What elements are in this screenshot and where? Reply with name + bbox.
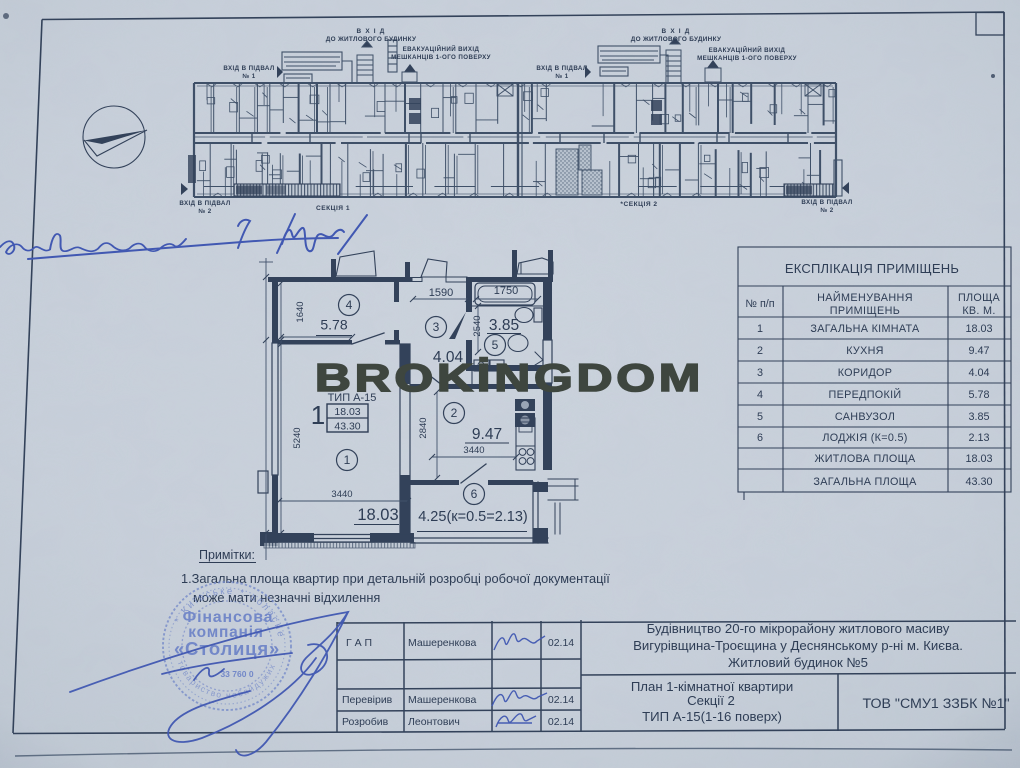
svg-text:02.14: 02.14	[548, 694, 574, 706]
svg-text:1750: 1750	[494, 285, 518, 297]
svg-text:КОРИДОР: КОРИДОР	[838, 367, 893, 379]
svg-text:4.04: 4.04	[968, 367, 989, 379]
svg-text:4: 4	[757, 389, 763, 401]
svg-text:САНВУЗОЛ: САНВУЗОЛ	[835, 411, 895, 423]
svg-text:9.47: 9.47	[472, 426, 502, 443]
svg-text:Г А П: Г А П	[346, 637, 372, 649]
svg-text:3: 3	[433, 320, 440, 334]
svg-text:№ 2: № 2	[820, 207, 833, 214]
svg-text:ПРИМІЩЕНЬ: ПРИМІЩЕНЬ	[830, 305, 901, 317]
svg-text:33 760 0: 33 760 0	[220, 669, 253, 679]
svg-text:1: 1	[757, 323, 763, 335]
svg-text:№ 1: № 1	[555, 73, 568, 80]
svg-text:МЕШКАНЦІВ 1-ОГО ПОВЕРХУ: МЕШКАНЦІВ 1-ОГО ПОВЕРХУ	[697, 55, 797, 62]
svg-text:9.47: 9.47	[968, 345, 989, 357]
svg-text:18.03: 18.03	[965, 323, 992, 335]
svg-text:Житловий будинок №5: Житловий будинок №5	[728, 655, 868, 670]
svg-text:3: 3	[757, 367, 763, 379]
svg-text:План 1-кімнатної квартири: План 1-кімнатної квартири	[631, 679, 793, 694]
svg-text:2.13: 2.13	[968, 432, 989, 444]
svg-text:КВ. М.: КВ. М.	[962, 305, 995, 317]
svg-text:ЕВАКУАЦІЙНИЙ ВИХІД: ЕВАКУАЦІЙНИЙ ВИХІД	[709, 46, 786, 54]
svg-text:5: 5	[492, 338, 499, 352]
svg-text:НАЙМЕНУВАННЯ: НАЙМЕНУВАННЯ	[817, 291, 913, 304]
svg-text:Машеренкова: Машеренкова	[408, 694, 476, 706]
svg-text:*СЕКЦІЯ 2: *СЕКЦІЯ 2	[620, 201, 657, 208]
svg-text:5: 5	[757, 411, 763, 423]
svg-text:ЗАГАЛЬНА КІМНАТА: ЗАГАЛЬНА КІМНАТА	[810, 323, 920, 335]
svg-text:43.30: 43.30	[965, 476, 992, 488]
svg-text:ПЛОЩА: ПЛОЩА	[958, 292, 1001, 304]
svg-text:ДО ЖИТЛОВОГО БУДИНКУ: ДО ЖИТЛОВОГО БУДИНКУ	[631, 36, 722, 43]
svg-text:18.03: 18.03	[357, 506, 398, 524]
svg-text:№ 2: № 2	[198, 208, 211, 215]
svg-text:ТОВ "СМУ1 ЗЗБК №1": ТОВ "СМУ1 ЗЗБК №1"	[862, 696, 1009, 712]
svg-text:1640: 1640	[295, 301, 306, 322]
svg-text:2840: 2840	[418, 417, 429, 438]
svg-text:5.78: 5.78	[968, 389, 989, 401]
svg-text:Секції 2: Секції 2	[687, 693, 735, 708]
svg-text:1: 1	[344, 453, 351, 467]
svg-text:Будівництво 20-го мікрорайону: Будівництво 20-го мікрорайону житлового …	[647, 621, 950, 636]
svg-text:КУХНЯ: КУХНЯ	[846, 345, 884, 357]
svg-text:4: 4	[346, 298, 353, 312]
svg-text:В Х І Д: В Х І Д	[662, 28, 691, 35]
svg-text:ПЕРЕДПОКІЙ: ПЕРЕДПОКІЙ	[829, 388, 902, 401]
svg-text:№ 1: № 1	[242, 73, 255, 80]
svg-text:3.85: 3.85	[968, 411, 989, 423]
svg-text:ДО ЖИТЛОВОГО БУДИНКУ: ДО ЖИТЛОВОГО БУДИНКУ	[326, 36, 417, 43]
svg-text:6: 6	[757, 432, 763, 444]
svg-text:ЖИТЛОВА ПЛОЩА: ЖИТЛОВА ПЛОЩА	[814, 453, 916, 465]
svg-text:СЕКЦІЯ 1: СЕКЦІЯ 1	[316, 205, 350, 212]
svg-text:ЛОДЖІЯ (К=0.5): ЛОДЖІЯ (К=0.5)	[822, 432, 907, 444]
svg-text:Розробив: Розробив	[342, 716, 389, 728]
svg-text:ЗАГАЛЬНА ПЛОЩА: ЗАГАЛЬНА ПЛОЩА	[813, 476, 917, 488]
svg-text:3.85: 3.85	[489, 317, 519, 334]
svg-text:2: 2	[451, 406, 458, 420]
svg-text:3440: 3440	[331, 489, 352, 500]
svg-text:18.03: 18.03	[965, 453, 992, 465]
svg-text:43.30: 43.30	[334, 421, 360, 433]
svg-text:02.14: 02.14	[548, 716, 574, 728]
svg-text:№ п/п: № п/п	[745, 298, 774, 310]
svg-text:5.78: 5.78	[320, 317, 347, 333]
svg-text:02.14: 02.14	[548, 637, 574, 649]
svg-text:18.03: 18.03	[334, 406, 360, 418]
svg-text:1590: 1590	[429, 287, 453, 299]
svg-text:Леонтович: Леонтович	[408, 716, 460, 728]
svg-text:Вигурівщина-Троєщина у Деснянс: Вигурівщина-Троєщина у Деснянському р-ні…	[633, 638, 963, 653]
svg-text:ЕВАКУАЦІЙНИЙ ВИХІД: ЕВАКУАЦІЙНИЙ ВИХІД	[403, 45, 480, 53]
svg-text:ТИП А-15(1-16 поверх): ТИП А-15(1-16 поверх)	[642, 709, 782, 724]
svg-text:МЕШКАНЦІВ 1-ОГО ПОВЕРХУ: МЕШКАНЦІВ 1-ОГО ПОВЕРХУ	[391, 54, 491, 61]
svg-text:Перевірив: Перевірив	[342, 694, 393, 706]
svg-text:6: 6	[471, 487, 478, 501]
svg-text:2540: 2540	[472, 315, 483, 336]
svg-text:3440: 3440	[463, 445, 484, 456]
svg-text:ВХІД В ПІДВАЛ: ВХІД В ПІДВАЛ	[179, 200, 230, 207]
svg-text:ЕКСПЛІКАЦІЯ ПРИМІЩЕНЬ: ЕКСПЛІКАЦІЯ ПРИМІЩЕНЬ	[785, 261, 959, 276]
svg-text:Примітки:: Примітки:	[199, 548, 255, 562]
svg-text:2: 2	[757, 345, 763, 357]
svg-text:ВХІД В ПІДВАЛ: ВХІД В ПІДВАЛ	[801, 199, 852, 206]
svg-text:В Х І Д: В Х І Д	[357, 28, 386, 35]
svg-text:ВХІД В ПІДВАЛ: ВХІД В ПІДВАЛ	[536, 65, 587, 72]
svg-text:1: 1	[311, 400, 325, 430]
svg-text:BROKİNGDOM: BROKİNGDOM	[315, 356, 704, 400]
svg-text:ВХІД В ПІДВАЛ: ВХІД В ПІДВАЛ	[223, 65, 274, 72]
svg-text:4.25(к=0.5=2.13): 4.25(к=0.5=2.13)	[418, 509, 528, 525]
svg-text:Машеренкова: Машеренкова	[408, 637, 476, 649]
svg-text:5240: 5240	[292, 427, 303, 448]
